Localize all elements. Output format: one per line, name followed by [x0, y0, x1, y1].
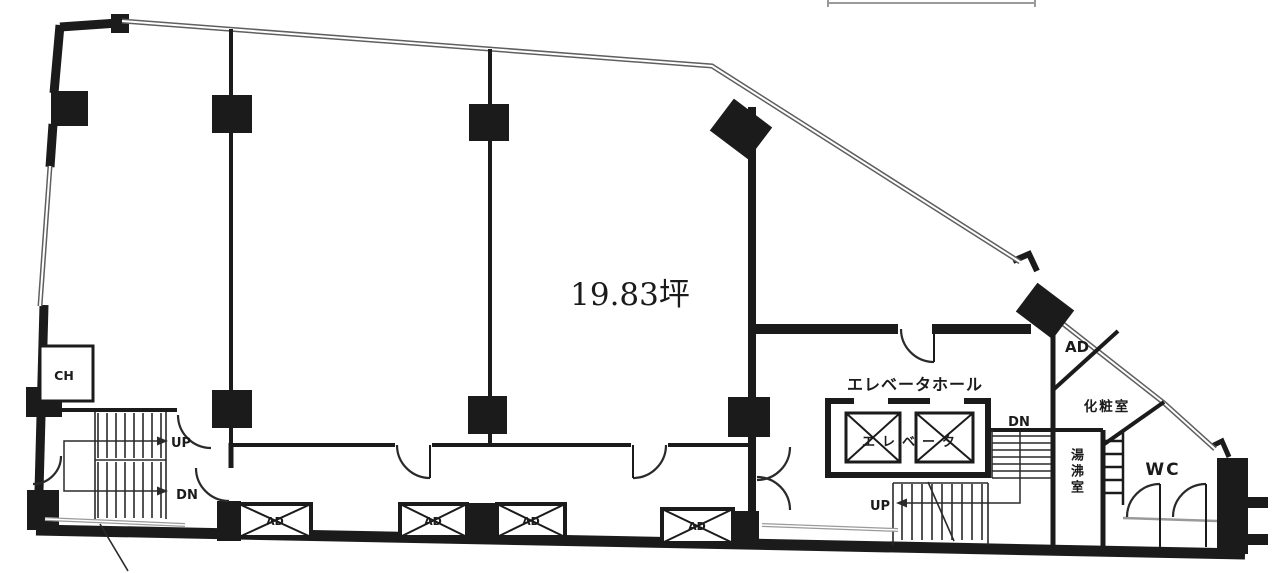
- floor-plan: 19.83坪 エレベータホール エレベータ CH AD 化粧室 WC UP DN…: [0, 0, 1280, 573]
- powder-room-label: 化粧室: [1084, 398, 1131, 415]
- vent-label: AD: [688, 520, 706, 533]
- right-stairs-up-label: UP: [870, 499, 890, 514]
- area-label: 19.83坪: [570, 277, 690, 313]
- left-staircase: [45, 412, 185, 571]
- exterior-window-lines: [40, 21, 1215, 449]
- vent-label: AD: [266, 515, 284, 528]
- ch-label: CH: [54, 368, 74, 383]
- ad-label: AD: [1065, 338, 1089, 356]
- wc-fixtures: [1123, 484, 1217, 547]
- columns: [26, 91, 1074, 549]
- wc-label: WC: [1145, 460, 1180, 480]
- floor-plan-linework: 19.83坪 エレベータホール エレベータ CH AD 化粧室 WC UP DN…: [0, 0, 1280, 573]
- vent-label: AD: [522, 515, 540, 528]
- vent-label: AD: [424, 515, 442, 528]
- elevator-label: エレベータ: [862, 435, 962, 450]
- left-stairs-dn-label: DN: [176, 488, 198, 503]
- elevator-hall-label: エレベータホール: [847, 375, 983, 394]
- crop-artifact: [828, 0, 1035, 7]
- right-stairs-dn-label: DN: [1008, 415, 1030, 430]
- kitchenette-label: 湯沸室: [1069, 448, 1082, 532]
- left-stairs-up-label: UP: [171, 436, 191, 451]
